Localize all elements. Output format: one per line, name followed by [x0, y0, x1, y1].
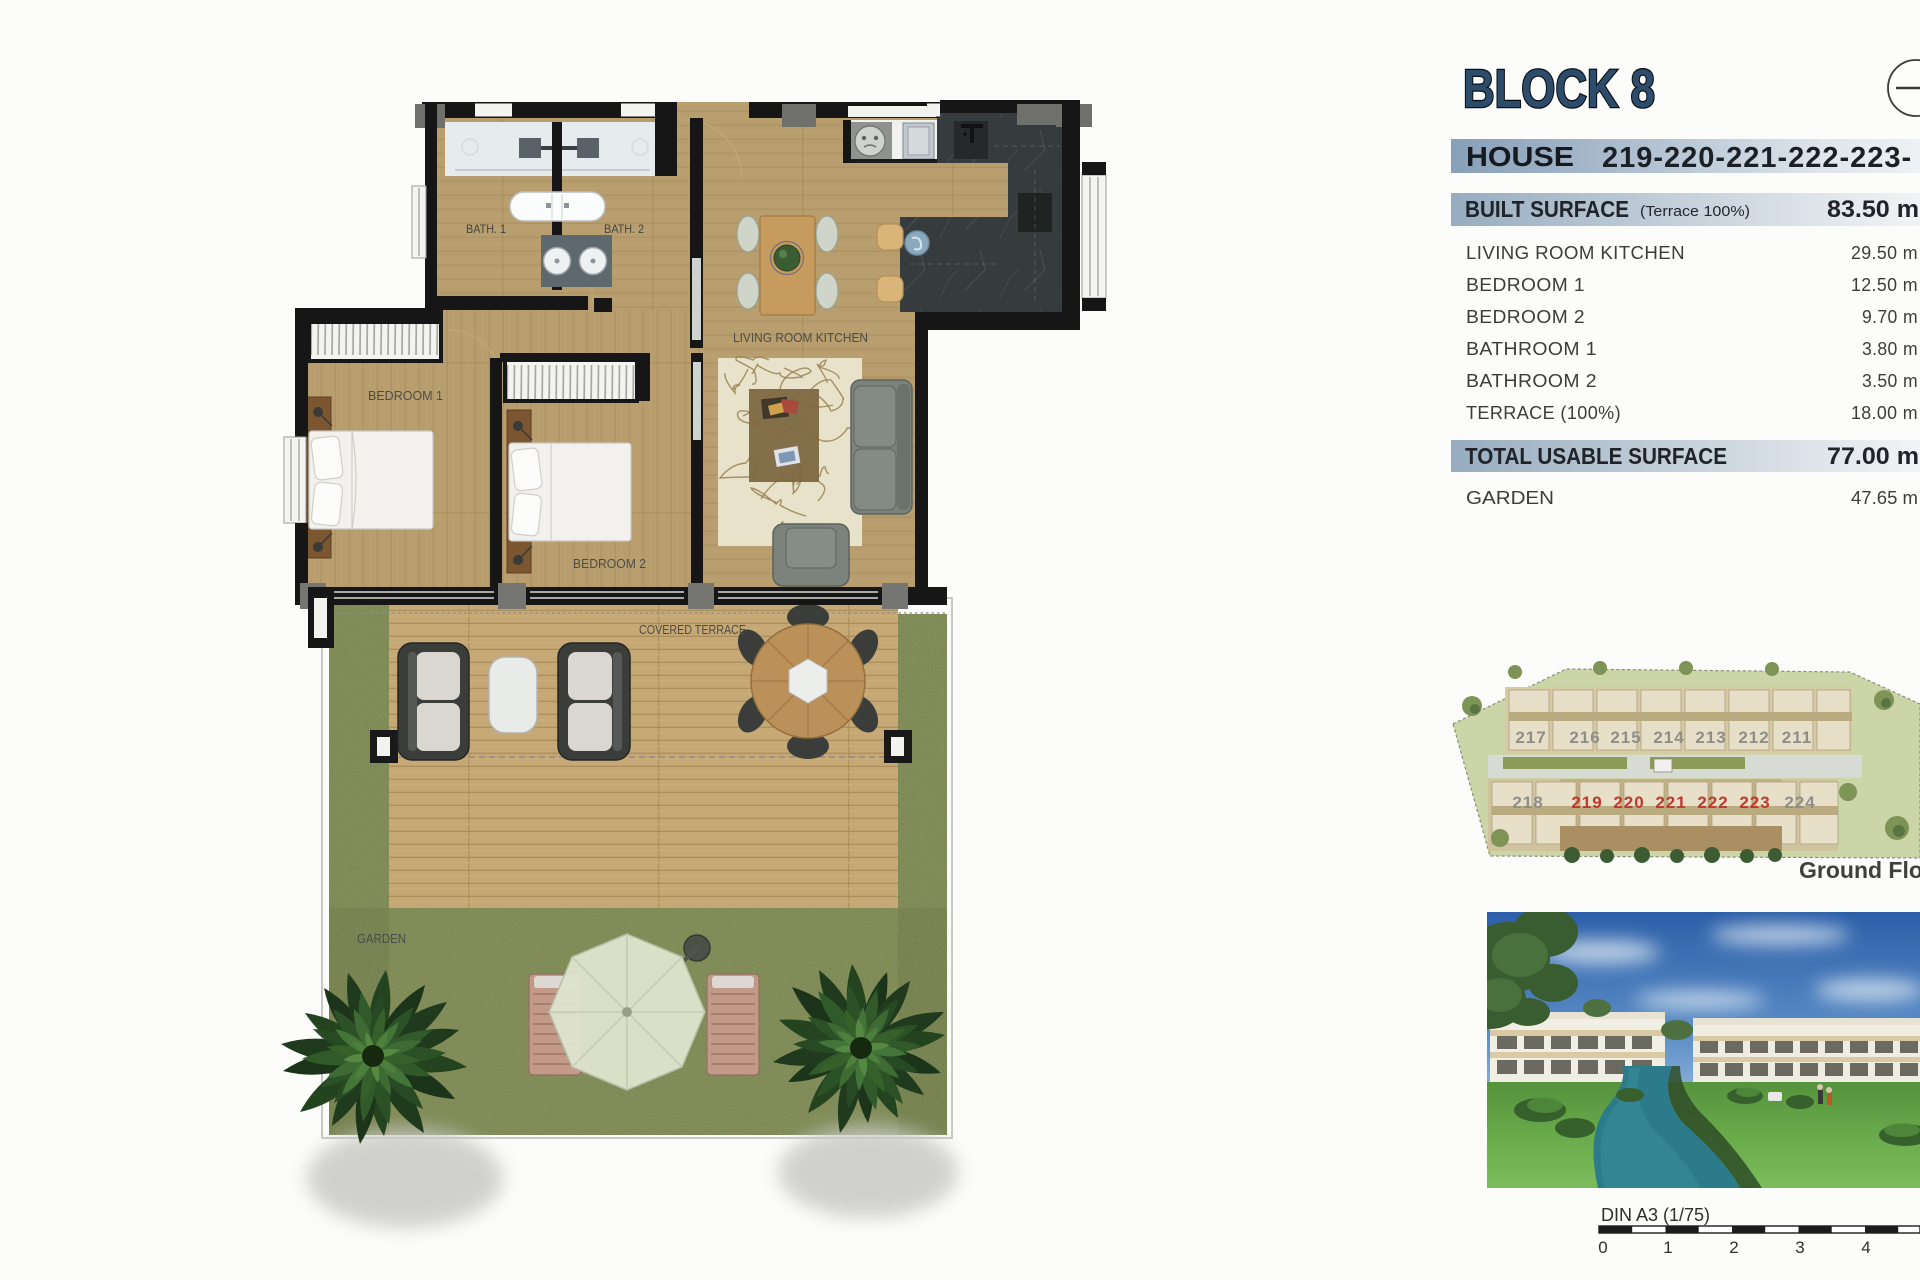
svg-text:217: 217 [1515, 728, 1546, 747]
svg-text:216: 216 [1569, 728, 1600, 747]
svg-text:BATHROOM 2: BATHROOM 2 [1466, 370, 1597, 391]
svg-text:BEDROOM 1: BEDROOM 1 [1466, 274, 1585, 295]
svg-text:Ground Floo: Ground Floo [1799, 857, 1920, 883]
svg-text:BUILT SURFACE: BUILT SURFACE [1465, 196, 1629, 222]
svg-text:29.50 m: 29.50 m [1851, 242, 1918, 263]
svg-text:221: 221 [1655, 793, 1686, 812]
svg-text:GARDEN: GARDEN [357, 932, 406, 946]
svg-text:TOTAL USABLE SURFACE: TOTAL USABLE SURFACE [1465, 443, 1727, 469]
svg-text:9.70 m: 9.70 m [1862, 306, 1918, 327]
svg-text:3: 3 [1795, 1238, 1804, 1257]
svg-text:220: 220 [1613, 793, 1644, 812]
svg-text:219-220-221-222-223-: 219-220-221-222-223- [1602, 142, 1912, 174]
svg-text:BATH. 1: BATH. 1 [466, 222, 506, 236]
svg-text:BATHROOM 1: BATHROOM 1 [1466, 338, 1597, 359]
svg-text:211: 211 [1782, 728, 1812, 747]
svg-text:47.65 m: 47.65 m [1851, 487, 1918, 508]
svg-text:214: 214 [1653, 728, 1684, 747]
svg-text:LIVING ROOM KITCHEN: LIVING ROOM KITCHEN [733, 331, 868, 345]
svg-text:215: 215 [1610, 728, 1641, 747]
svg-text:4: 4 [1861, 1238, 1870, 1257]
svg-text:0: 0 [1598, 1238, 1607, 1257]
svg-text:77.00 m: 77.00 m [1827, 443, 1919, 470]
svg-text:222: 222 [1697, 793, 1728, 812]
svg-text:224: 224 [1784, 793, 1815, 812]
svg-text:212: 212 [1738, 728, 1769, 747]
svg-text:DIN A3 (1/75): DIN A3 (1/75) [1601, 1205, 1710, 1225]
svg-text:3.80 m: 3.80 m [1862, 338, 1918, 359]
svg-text:12.50 m: 12.50 m [1851, 274, 1918, 295]
svg-text:213: 213 [1695, 728, 1726, 747]
svg-text:18.00 m: 18.00 m [1851, 402, 1918, 423]
svg-text:BATH. 2: BATH. 2 [604, 222, 644, 236]
svg-text:BEDROOM 2: BEDROOM 2 [1466, 306, 1585, 327]
svg-text:TERRACE (100%): TERRACE (100%) [1466, 402, 1621, 423]
svg-text:2: 2 [1729, 1238, 1738, 1257]
svg-text:1: 1 [1663, 1238, 1672, 1257]
svg-text:219: 219 [1571, 793, 1602, 812]
svg-text:BLOCK 8: BLOCK 8 [1463, 59, 1655, 119]
svg-text:223: 223 [1739, 793, 1770, 812]
svg-text:BEDROOM 1: BEDROOM 1 [368, 389, 443, 403]
svg-text:218: 218 [1512, 793, 1543, 812]
svg-text:(Terrace 100%): (Terrace 100%) [1640, 203, 1750, 220]
svg-text:83.50 m: 83.50 m [1827, 196, 1919, 223]
svg-text:GARDEN: GARDEN [1466, 487, 1554, 508]
svg-text:HOUSE: HOUSE [1466, 141, 1574, 172]
svg-text:LIVING ROOM KITCHEN: LIVING ROOM KITCHEN [1466, 242, 1685, 263]
svg-text:3.50 m: 3.50 m [1862, 370, 1918, 391]
svg-text:COVERED TERRACE: COVERED TERRACE [639, 623, 746, 637]
svg-text:BEDROOM 2: BEDROOM 2 [573, 557, 646, 571]
